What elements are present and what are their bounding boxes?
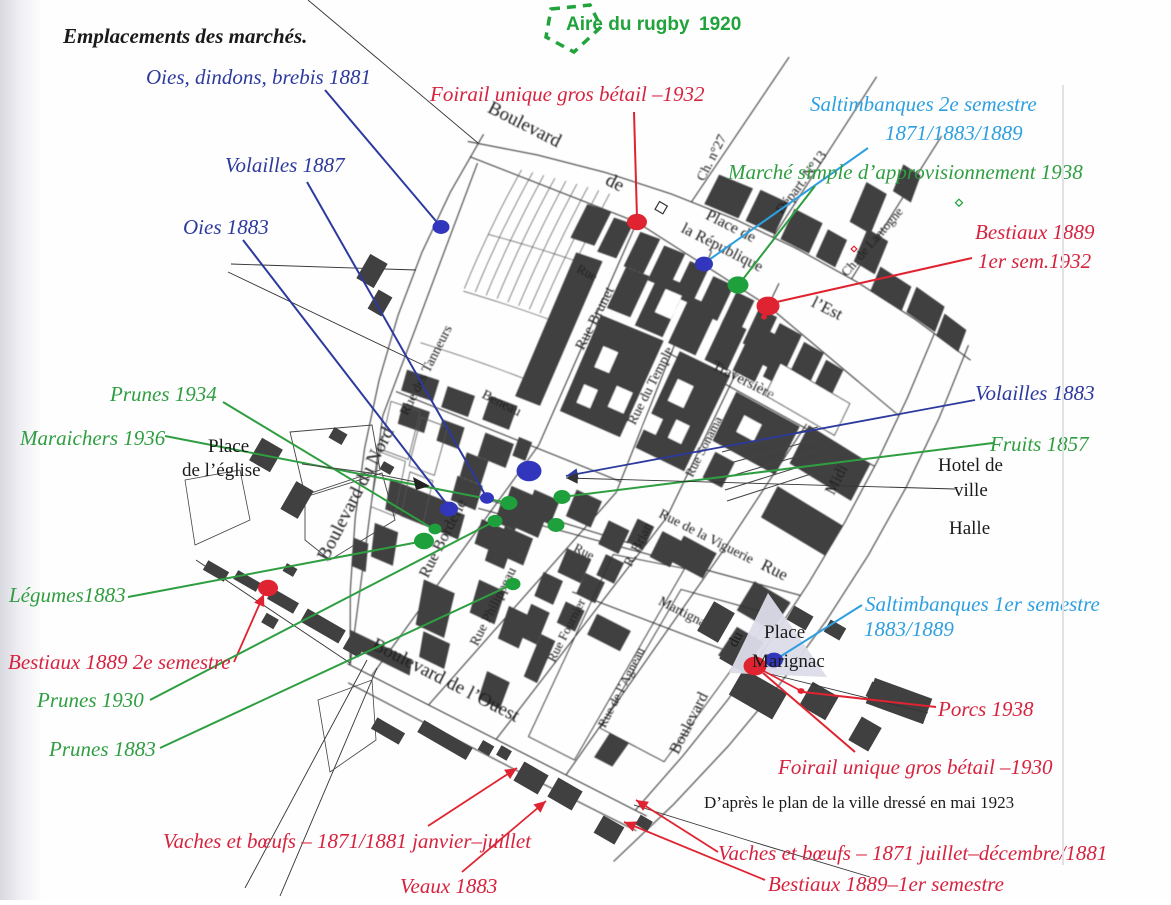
- svg-text:1920: 1920: [699, 14, 741, 35]
- svg-text:Hotel de: Hotel de: [938, 455, 1003, 476]
- svg-text:Emplacements des marchés.: Emplacements des marchés.: [62, 24, 307, 48]
- svg-text:Foirail unique gros bétail –19: Foirail unique gros bétail –1932: [429, 82, 705, 106]
- svg-text:Foirail unique gros bétail –19: Foirail unique gros bétail –1930: [777, 755, 1053, 779]
- svg-text:Prunes 1930: Prunes 1930: [36, 688, 144, 712]
- svg-text:Place: Place: [208, 436, 249, 457]
- svg-text:Volailles 1887: Volailles 1887: [225, 153, 346, 177]
- svg-text:Oies 1883: Oies 1883: [183, 215, 269, 239]
- svg-text:Porcs 1938: Porcs 1938: [937, 697, 1034, 721]
- svg-text:Fruits 1857: Fruits 1857: [989, 432, 1090, 456]
- svg-text:Vaches et bœufs – 1871 juillet: Vaches et bœufs – 1871 juillet–décembre/…: [718, 841, 1107, 865]
- svg-text:de l’église: de l’église: [182, 460, 261, 481]
- svg-text:Marignac: Marignac: [752, 651, 825, 672]
- svg-text:Veaux 1883: Veaux 1883: [400, 874, 497, 898]
- svg-text:Marché simple d’approvisionnem: Marché simple d’approvisionnement 1938: [727, 160, 1083, 184]
- svg-text:Bestiaux 1889: Bestiaux 1889: [975, 220, 1095, 244]
- svg-text:Place: Place: [764, 622, 805, 643]
- svg-text:1871/1883/1889: 1871/1883/1889: [885, 121, 1023, 145]
- svg-text:Volailles 1883: Volailles 1883: [975, 381, 1095, 405]
- svg-text:ville: ville: [954, 480, 988, 501]
- svg-text:Prunes 1934: Prunes 1934: [109, 382, 217, 406]
- svg-text:1883/1889: 1883/1889: [864, 617, 954, 641]
- svg-text:1er sem.1932: 1er sem.1932: [978, 249, 1092, 273]
- svg-text:Légumes1883: Légumes1883: [8, 583, 126, 607]
- svg-text:Bestiaux 1889 2e semestre: Bestiaux 1889 2e semestre: [8, 650, 231, 674]
- svg-text:Aire du rugby: Aire du rugby: [566, 14, 690, 35]
- svg-text:Prunes 1883: Prunes 1883: [48, 737, 156, 761]
- svg-text:Saltimbanques 2e semestre: Saltimbanques 2e semestre: [810, 92, 1037, 116]
- svg-text:Saltimbanques 1er semestre: Saltimbanques 1er semestre: [865, 592, 1100, 616]
- svg-text:Oies, dindons, brebis 1881: Oies, dindons, brebis 1881: [146, 65, 371, 89]
- svg-text:Maraichers 1936: Maraichers 1936: [19, 426, 166, 450]
- svg-text:Vaches et bœufs – 1871/1881 ja: Vaches et bœufs – 1871/1881 janvier–juil…: [163, 829, 532, 853]
- svg-text:Halle: Halle: [949, 518, 990, 539]
- svg-text:D’après le plan de la ville dr: D’après le plan de la ville dressé en ma…: [704, 793, 1014, 812]
- svg-text:Bestiaux 1889–1er semestre: Bestiaux 1889–1er semestre: [768, 872, 1004, 896]
